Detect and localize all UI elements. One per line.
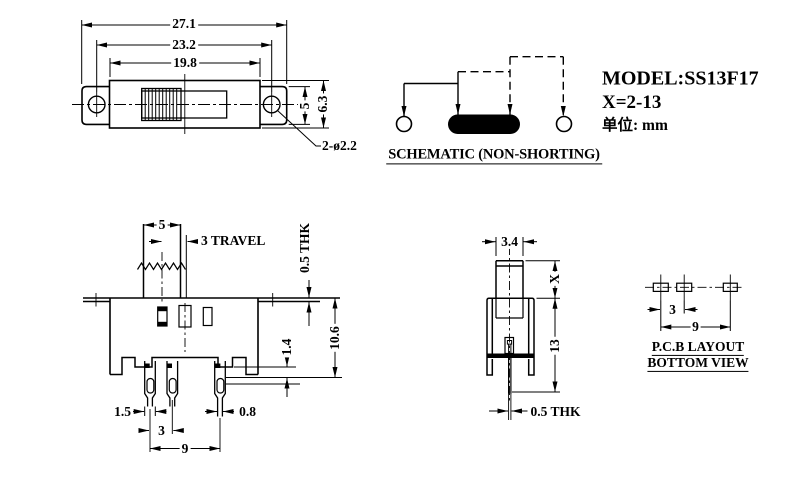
top-view	[72, 20, 329, 146]
terminal-pins	[144, 361, 225, 417]
dim-pad-span: 9	[690, 320, 701, 334]
dim-flange-thickness: 0.5 THK	[298, 223, 312, 273]
engineering-drawing-sheet: 27.1 23.2 19.8 5 6.3 2-ø2.2 SCHEMATIC (N…	[0, 0, 800, 480]
unit-label: 单位: mm	[602, 118, 668, 134]
dim-body-width: 6.3	[315, 94, 329, 115]
dim-knob-width: 5	[157, 218, 168, 232]
dim-total-height: 13	[547, 337, 561, 355]
dim-hole-spacing: 23.2	[170, 37, 198, 51]
dim-pad-pitch: 3	[669, 302, 676, 316]
dim-mounting-holes: 2-ø2.2	[322, 139, 357, 153]
dim-pin-tail-width: 0.8	[239, 404, 256, 418]
x-range: X=2-13	[602, 93, 661, 113]
dim-knob-depth: 3.4	[499, 234, 520, 248]
dim-overall-width: 27.1	[170, 17, 198, 31]
pcb-caption-line2: BOTTOM VIEW	[647, 355, 748, 371]
dim-pin-thickness: 0.5 THK	[531, 405, 581, 419]
dim-travel: 3 TRAVEL	[201, 234, 265, 248]
break-line	[138, 263, 186, 270]
pcb-caption-line1: P.C.B LAYOUT	[652, 339, 744, 355]
schematic-diagram	[397, 57, 572, 134]
model-number: MODEL:SS13F17	[602, 69, 759, 90]
dim-base-step: 1.4	[280, 337, 294, 358]
dim-body-height: 10.6	[328, 324, 342, 352]
side-view	[482, 237, 560, 420]
terminal-right	[557, 117, 572, 132]
dim-body-length: 19.8	[171, 55, 199, 69]
terminal-left	[397, 117, 412, 132]
common-contact	[448, 115, 520, 135]
dim-ear-height: 5	[297, 100, 311, 111]
dim-pin-span: 9	[180, 441, 191, 455]
schematic-caption: SCHEMATIC (NON-SHORTING)	[386, 147, 602, 164]
dim-knob-height-x: X	[548, 272, 562, 286]
dim-pin-pitch: 3	[158, 423, 165, 437]
dim-pin-width: 1.5	[114, 404, 131, 418]
base-plate	[488, 354, 535, 359]
